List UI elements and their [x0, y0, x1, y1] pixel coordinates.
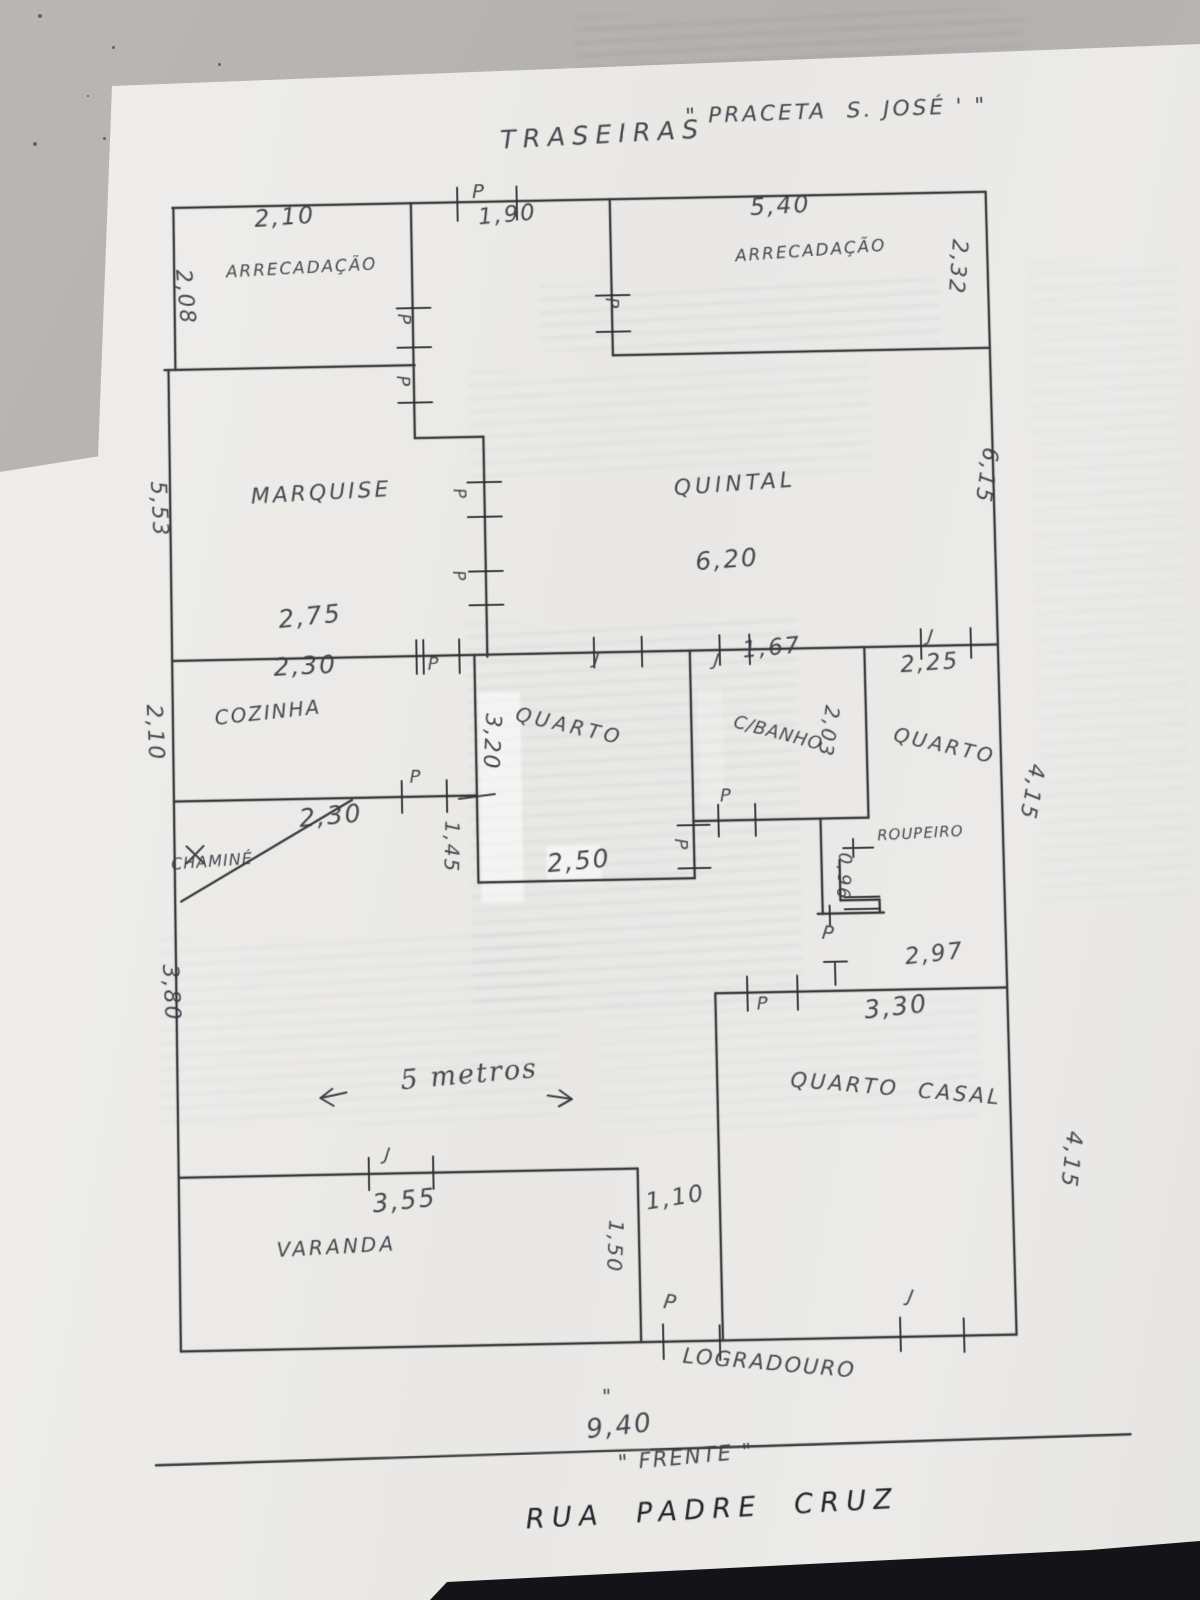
label-dim-2-10-top: 2,10 [254, 203, 316, 231]
label-p-arr1-b: P [393, 375, 412, 389]
label-dim-1-67: 1,67 [741, 634, 802, 662]
label-dim-0-96: 0,96 [833, 852, 853, 901]
label-quintal: QUINTAL [673, 470, 797, 500]
floor-plan-drawing: TRASEIRAS" PRACETA S. JOSÉ ' "P1,902,10A… [0, 0, 1200, 1600]
label-ditto: " [602, 1386, 614, 1407]
label-j-casal: J [906, 1288, 917, 1307]
label-dim-2-50-quarto: 2,50 [546, 845, 612, 876]
label-dim-3-20: 3,20 [479, 713, 504, 771]
label-dim-6-15: 6,15 [971, 446, 1001, 505]
label-quarto-dir: QUARTO [892, 724, 998, 767]
label-dim-1-90: 1,90 [477, 202, 537, 230]
label-j-225: J [927, 628, 936, 647]
label-logradouro: LOGRADOURO [682, 1345, 857, 1381]
label-dim-2-32: 2,32 [944, 238, 970, 296]
label-p-cbanho: P [720, 787, 733, 805]
label-j-mid: J [593, 651, 602, 670]
label-dim-2-08: 2,08 [171, 268, 197, 326]
label-dim-2-75: 2,75 [277, 600, 343, 631]
label-dim-2-30-cozinha: 2,30 [298, 800, 364, 831]
label-dim-2-03: 2,03 [815, 704, 843, 759]
label-cbanho: C/BANHO [732, 713, 825, 754]
label-p-quarto: P [671, 838, 689, 851]
label-praceta: " PRACETA S. JOSÉ ' " [685, 96, 988, 129]
label-quarto-casal: QUARTO CASAL [790, 1069, 1003, 1108]
label-p-marq-a: P [450, 487, 468, 501]
label-cozinha: COZINHA [214, 697, 322, 728]
label-marquise: MARQUISE [251, 479, 392, 508]
label-p-sala: P [756, 995, 769, 1013]
label-p-arr2: P [602, 297, 621, 311]
label-dim-3-30: 3,30 [863, 991, 929, 1023]
photo-of-hand-drawn-floor-plan: TRASEIRAS" PRACETA S. JOSÉ ' "P1,902,10A… [0, 0, 1200, 1600]
label-p-cozinha: P [409, 769, 422, 787]
label-j-varanda: J [383, 1146, 393, 1165]
label-dim-1-45: 1,45 [441, 820, 462, 873]
label-dim-6-20: 6,20 [695, 545, 760, 574]
label-varanda: VARANDA [276, 1233, 396, 1260]
handwritten-annotations: TRASEIRAS" PRACETA S. JOSÉ ' "P1,902,10A… [0, 0, 1200, 1600]
label-dim-9-40: 9,40 [585, 1410, 654, 1444]
label-cinco-metros: 5 metros [399, 1055, 539, 1095]
label-roupeiro: ROUPEIRO [877, 824, 964, 844]
label-p-marq-b: P [449, 570, 467, 584]
label-dim-2-10-left: 2,10 [142, 704, 167, 762]
label-arrecadacao-1: ARRECADAÇÃO [226, 256, 378, 281]
label-dim-5-40: 5,40 [749, 192, 811, 219]
label-traseiras: TRASEIRAS [500, 117, 706, 153]
label-dim-2-97: 2,97 [904, 940, 966, 969]
label-j-167: J [713, 652, 722, 671]
label-rua: RUA PADRE CRUZ [525, 1485, 900, 1533]
label-dim-2-30-wall: 2,30 [273, 651, 338, 679]
label-p-arr1-a: P [394, 313, 412, 327]
label-p-top: P [472, 181, 486, 201]
label-frente: " FRENTE " [617, 1441, 754, 1475]
label-dim-4-15-a: 4,15 [1015, 762, 1047, 822]
label-dim-4-15-b: 4,15 [1056, 1130, 1084, 1190]
label-dim-3-55: 3,55 [371, 1184, 437, 1216]
paper-speck [38, 14, 42, 18]
label-p-mid: P [427, 656, 440, 674]
label-p-varanda: P [662, 1291, 679, 1313]
label-quarto-meio: QUARTO [514, 704, 625, 748]
label-dim-2-25: 2,25 [899, 650, 960, 677]
label-arrecadacao-2: ARRECADAÇÃO [735, 238, 887, 265]
label-p-roupeiro: P [821, 924, 837, 945]
label-chamine: CHAMINÉ [171, 851, 254, 873]
label-dim-1-10: 1,10 [644, 1182, 707, 1215]
label-dim-5-53: 5,53 [146, 481, 171, 538]
label-dim-3-80: 3,80 [158, 964, 183, 1022]
label-dim-1-50: 1,50 [604, 1219, 627, 1273]
